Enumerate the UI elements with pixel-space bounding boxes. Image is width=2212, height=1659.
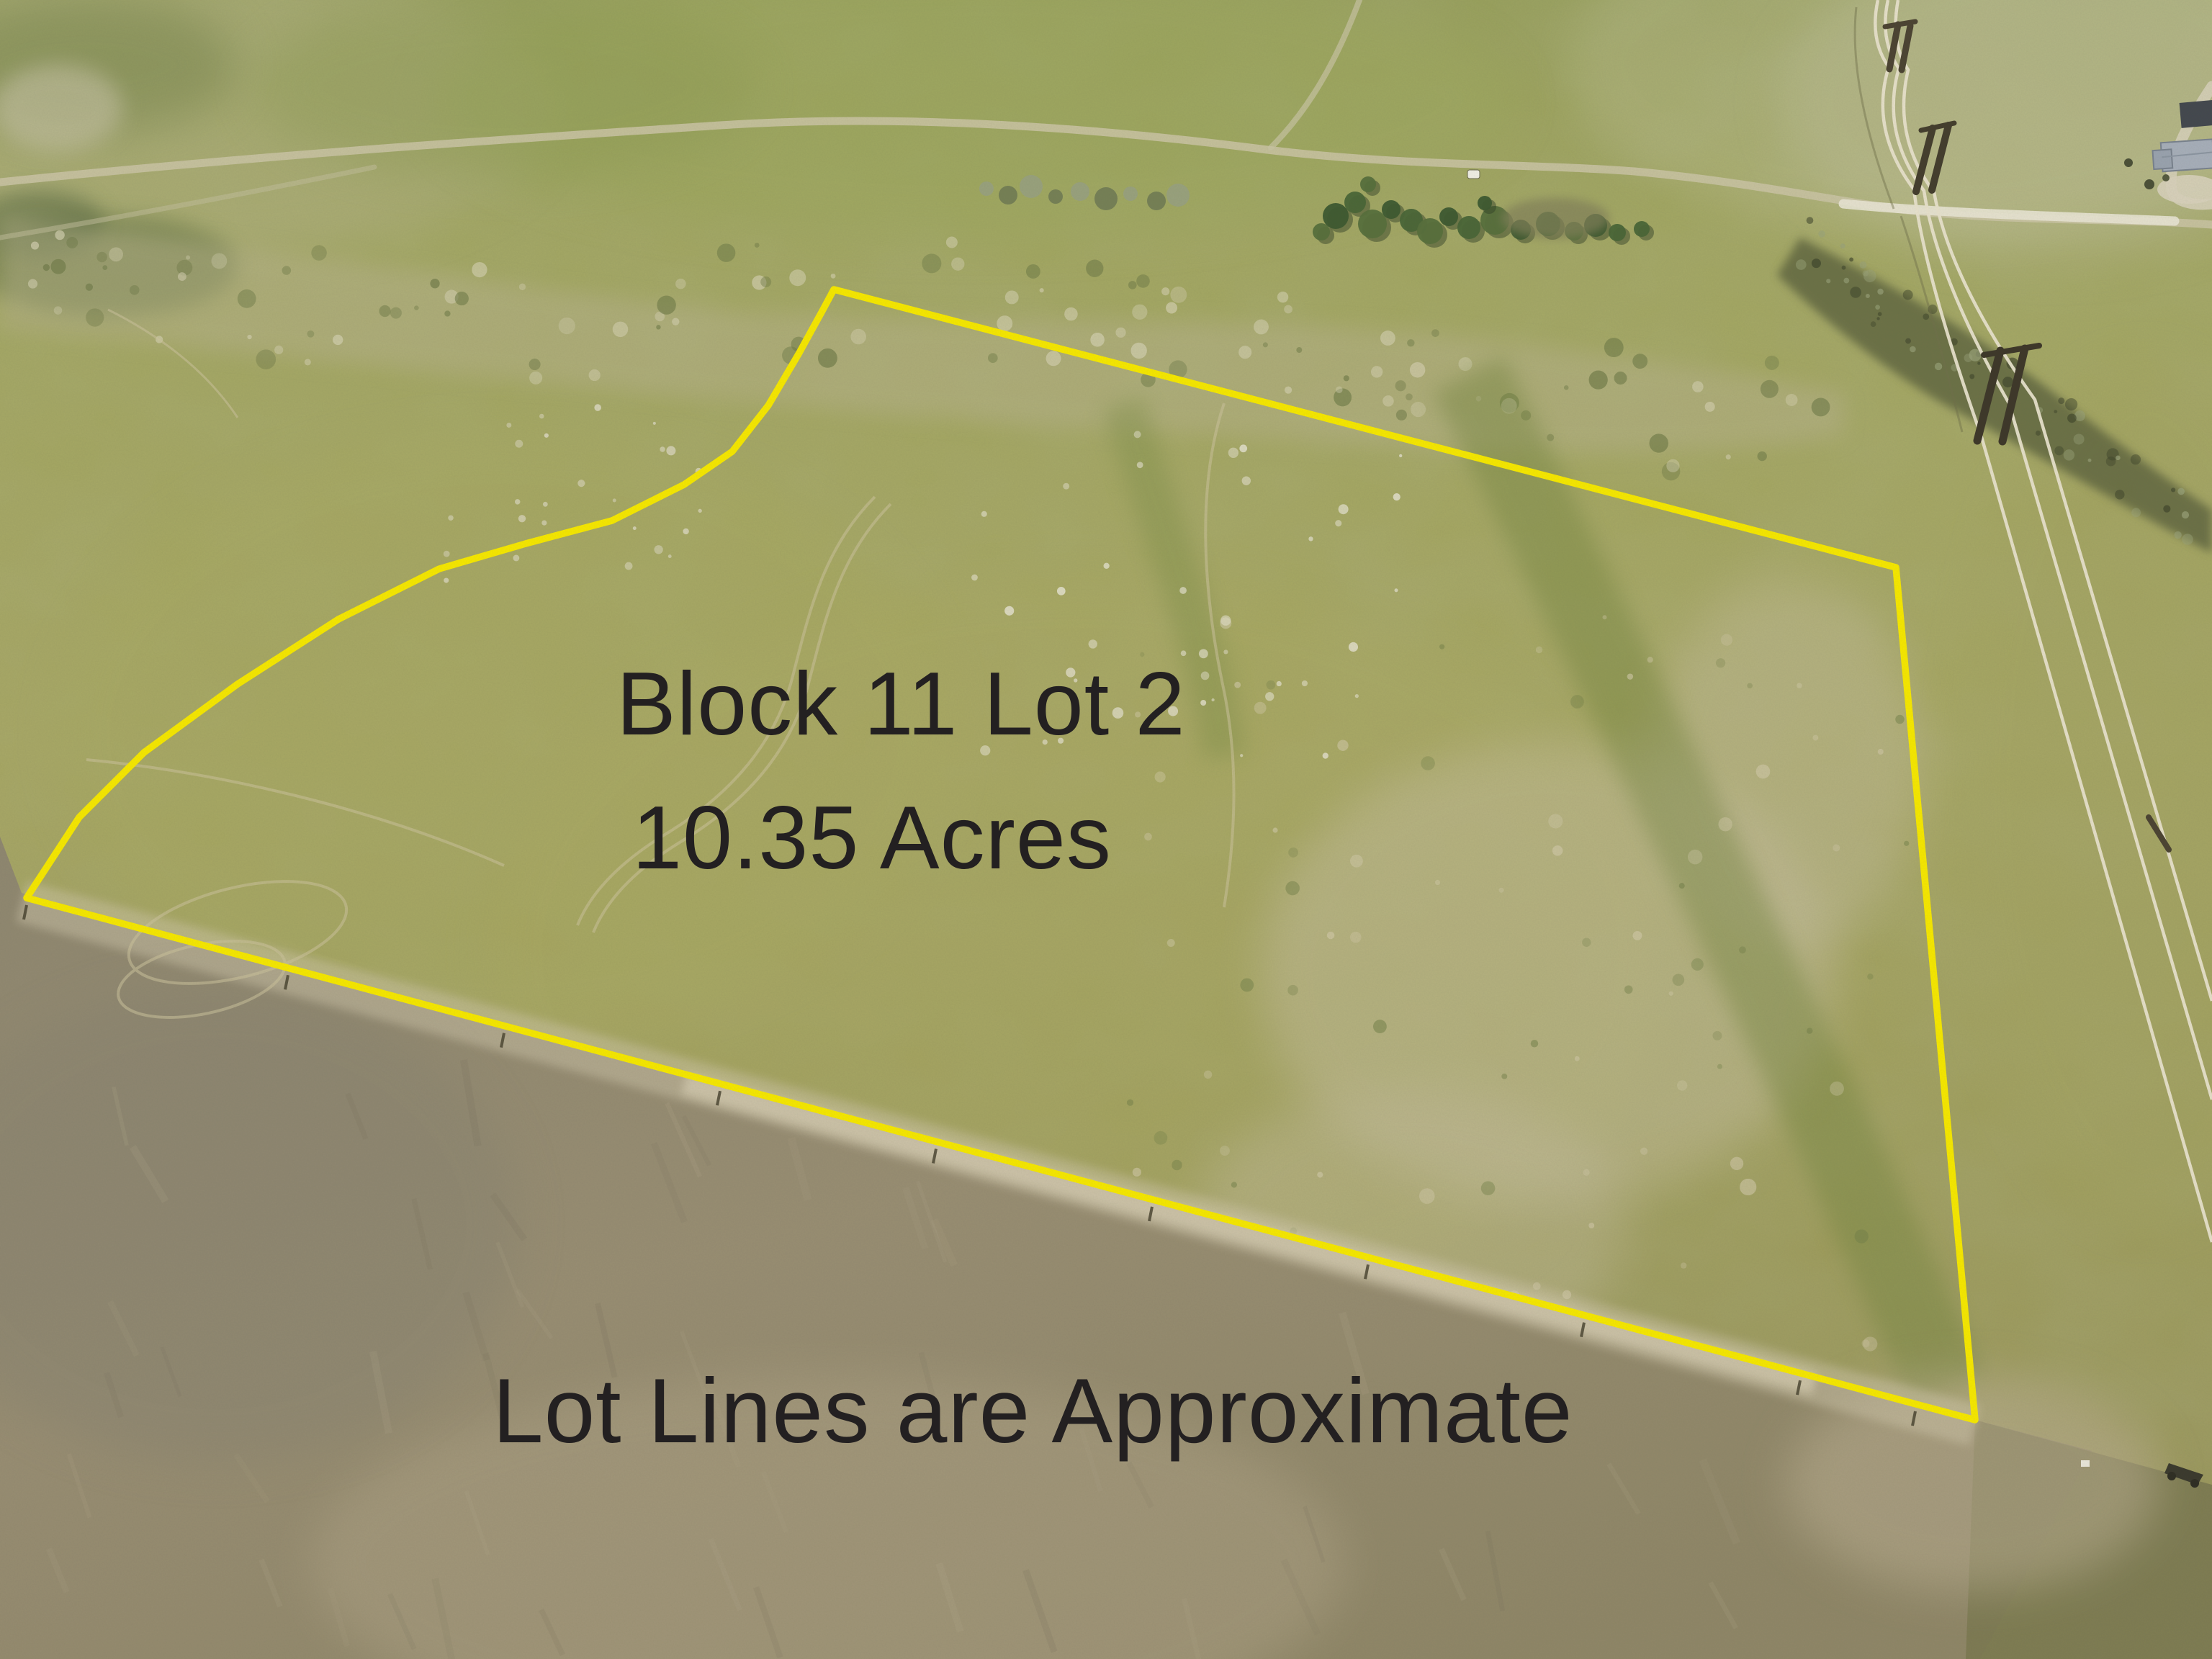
aerial-photo: Block 11 Lot 2 10.35 Acres Lot Lines are… xyxy=(0,0,2212,1659)
lot-title: Block 11 Lot 2 xyxy=(616,660,1186,749)
disclaimer: Lot Lines are Approximate xyxy=(493,1365,1573,1457)
lot-acreage: 10.35 Acres xyxy=(632,793,1112,883)
